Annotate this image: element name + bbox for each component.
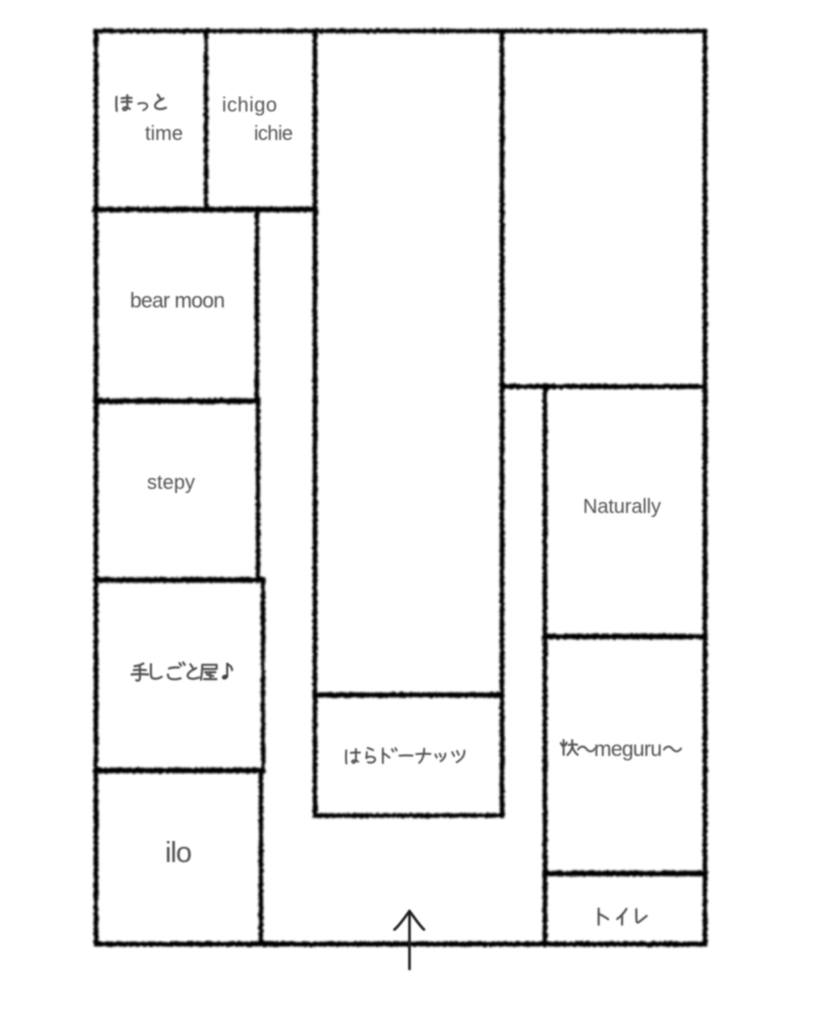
svg-text:time: time: [145, 123, 183, 145]
svg-text:Naturally: Naturally: [583, 496, 661, 518]
svg-text:bear moon: bear moon: [130, 290, 225, 313]
svg-text:ichigo: ichigo: [222, 95, 277, 117]
svg-text:meguru: meguru: [594, 738, 662, 761]
svg-text:ilo: ilo: [165, 837, 192, 869]
svg-text:stepy: stepy: [147, 472, 195, 494]
svg-text:ichie: ichie: [254, 123, 293, 145]
